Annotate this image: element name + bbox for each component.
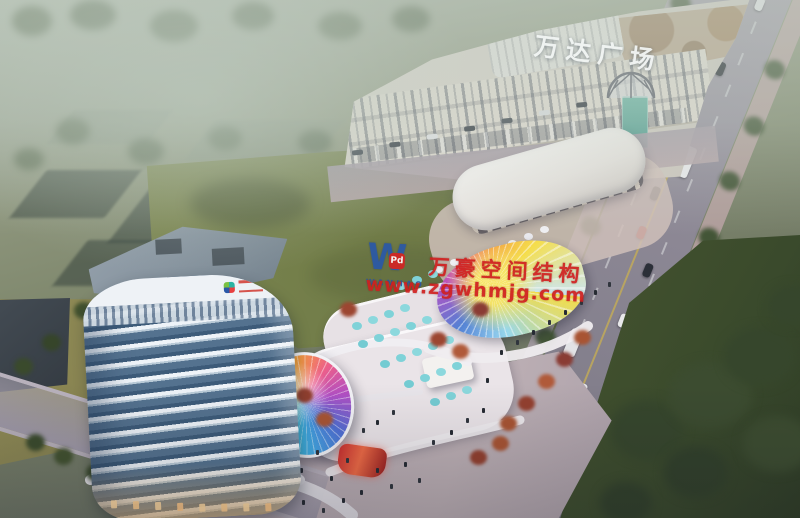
tree [232,2,274,30]
tree [14,148,44,170]
tree [392,6,430,32]
tree [298,130,332,154]
pedestrians [0,0,3,5]
roof-structure [155,238,182,254]
tree [208,126,242,150]
tree [318,12,362,40]
tower-body [81,271,302,518]
tree [128,138,164,164]
industrial-shed [9,170,142,218]
aerial-rendering-scene: 万达广场 W Pd WANHAO 万豪空间结构 www.zgwhmjg.com [0,0,800,518]
roof-structure [212,248,245,267]
tree [56,118,90,144]
tree-clump [724,328,796,386]
tree [12,6,52,36]
tower-base-glow [91,459,303,518]
watermark: W Pd WANHAO 万豪空间结构 www.zgwhmjg.com [365,244,618,319]
tower-logo-icon [223,281,235,293]
tower-logo-text [238,279,263,292]
tree-clump [664,446,728,498]
high-rise-tower [78,215,307,518]
green-trees [54,448,73,465]
car [753,0,765,12]
watermark-logo-badge: Pd [389,253,406,270]
teal-umbrellas [352,322,362,330]
tree [70,0,116,30]
lit-shopfront-windows [111,500,117,508]
bus [563,327,585,357]
tree [150,10,198,42]
tree-clump [600,482,652,518]
